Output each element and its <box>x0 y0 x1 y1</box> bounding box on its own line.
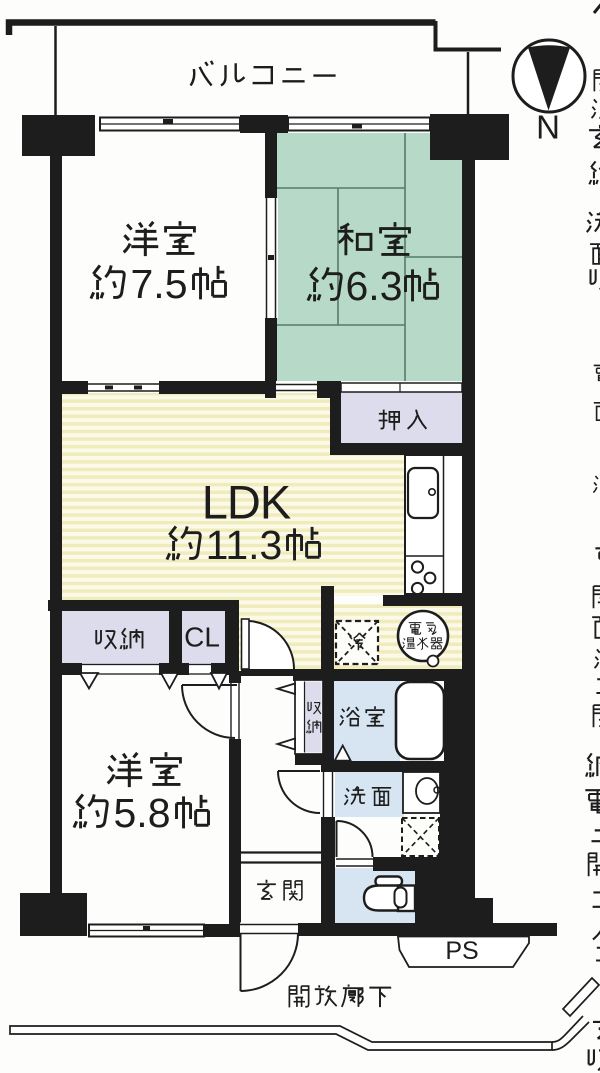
svg-text:6.3: 6.3 <box>346 263 403 309</box>
svg-text:11.3: 11.3 <box>206 522 283 568</box>
svg-text:PS: PS <box>445 937 478 965</box>
svg-text:N: N <box>536 109 560 146</box>
svg-text:5.8: 5.8 <box>114 790 171 836</box>
svg-text:LDK: LDK <box>202 476 291 529</box>
svg-text:CL: CL <box>184 622 220 653</box>
svg-text:7.5: 7.5 <box>131 261 188 307</box>
